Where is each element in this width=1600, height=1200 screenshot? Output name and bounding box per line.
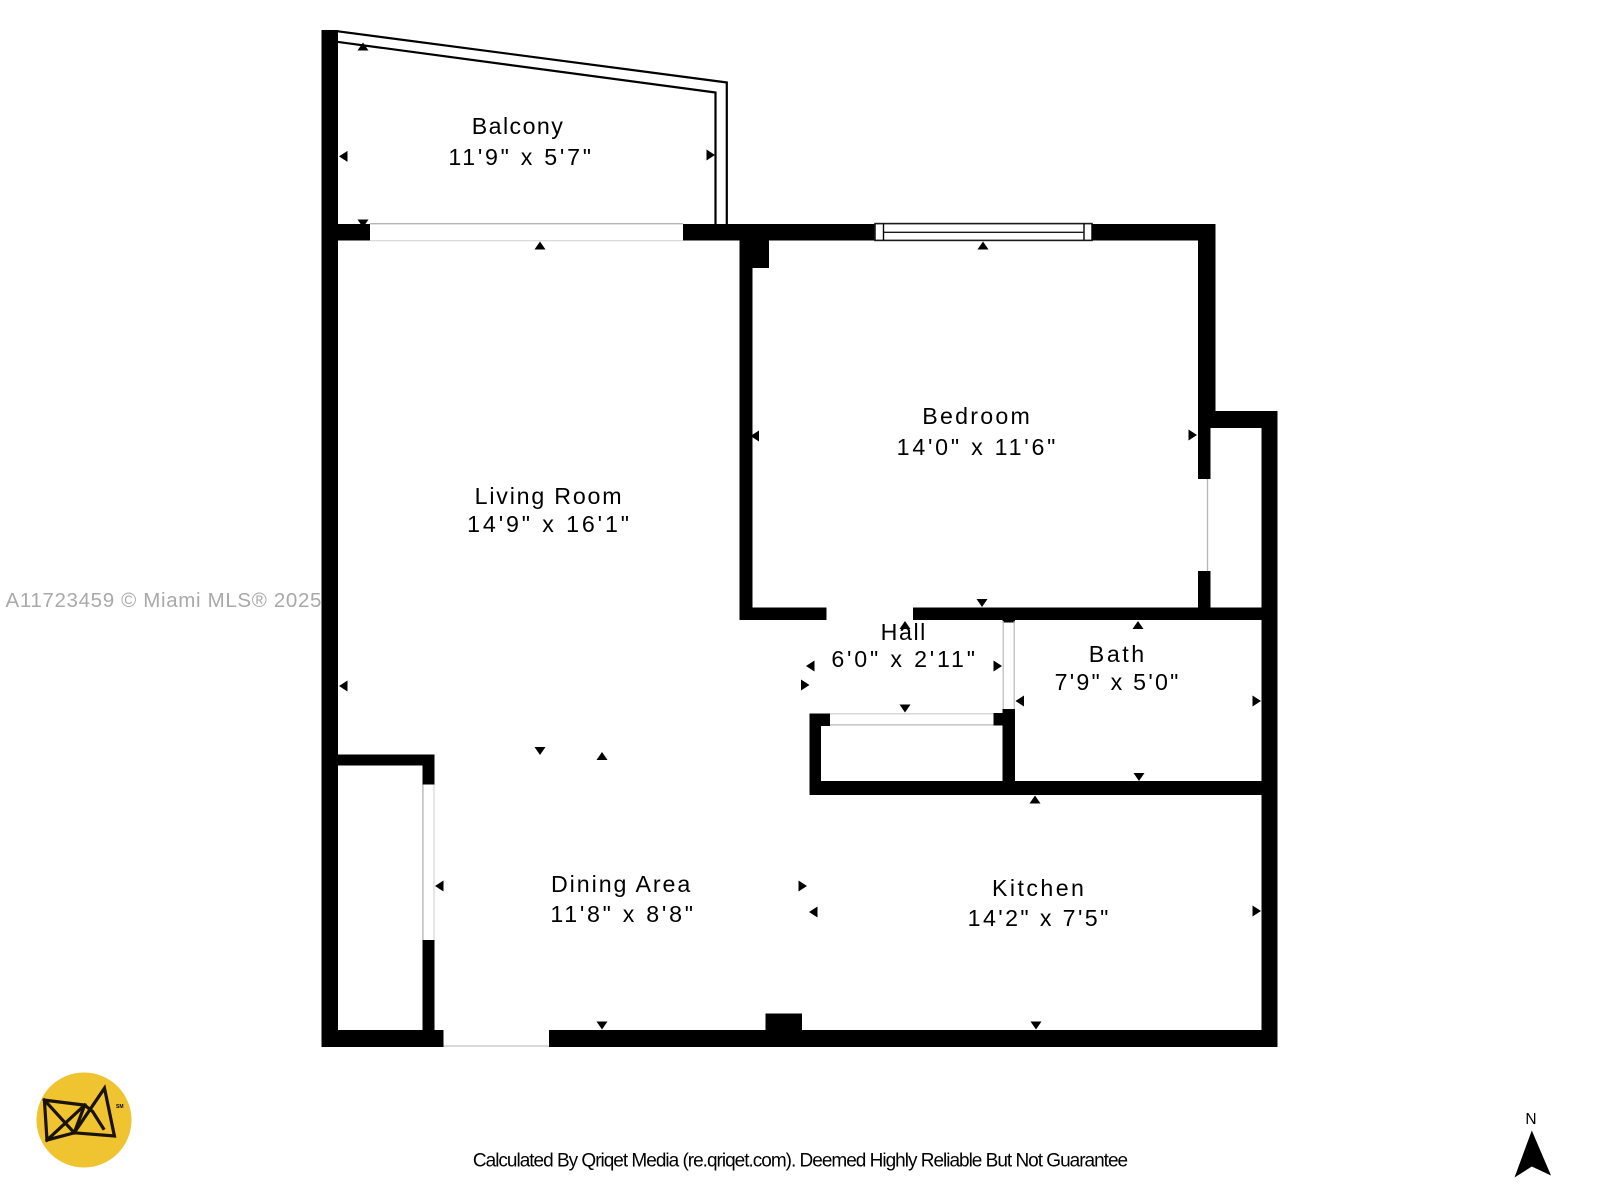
svg-text:Kitchen: Kitchen (992, 875, 1086, 901)
svg-text:Balcony: Balcony (472, 113, 564, 139)
svg-text:SM: SM (116, 1104, 124, 1110)
svg-text:14'2" x 7'5": 14'2" x 7'5" (968, 905, 1111, 931)
svg-text:14'0" x 11'6": 14'0" x 11'6" (897, 434, 1058, 460)
svg-text:Calculated By Qriqet Media (re: Calculated By Qriqet Media (re.qriqet.co… (473, 1151, 1128, 1172)
svg-text:Bath: Bath (1089, 641, 1147, 667)
svg-text:11'9" x 5'7": 11'9" x 5'7" (448, 144, 593, 170)
svg-text:6'0" x 2'11": 6'0" x 2'11" (831, 646, 978, 672)
svg-text:A11723459 © Miami MLS® 2025: A11723459 © Miami MLS® 2025 (6, 589, 323, 612)
svg-text:14'9" x 16'1": 14'9" x 16'1" (467, 511, 632, 537)
svg-text:Dining Area: Dining Area (551, 871, 692, 897)
svg-text:Living Room: Living Room (475, 483, 624, 509)
svg-text:Bedroom: Bedroom (922, 403, 1032, 429)
svg-text:N: N (1525, 1111, 1536, 1128)
svg-text:Hall: Hall (881, 619, 927, 645)
svg-text:7'9" x 5'0": 7'9" x 5'0" (1055, 669, 1181, 695)
svg-text:11'8" x 8'8": 11'8" x 8'8" (550, 901, 695, 927)
